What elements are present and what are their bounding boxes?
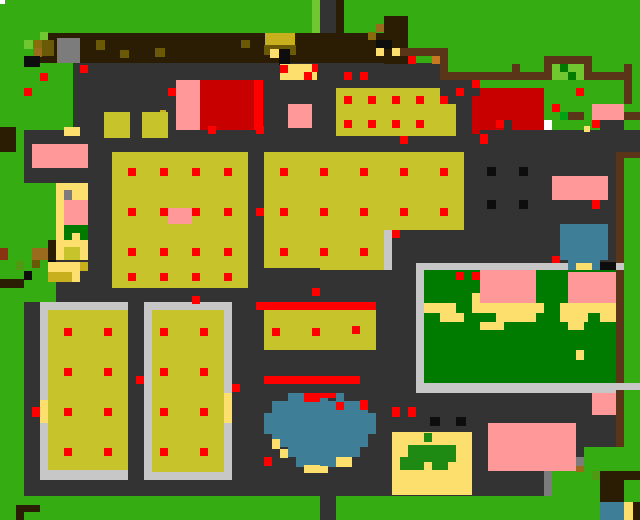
guest-marker	[392, 407, 400, 417]
entrance-door	[279, 49, 290, 65]
kerb-detail	[40, 400, 48, 423]
guest-marker	[256, 208, 264, 216]
guest-marker	[40, 73, 48, 81]
pink-stall-se	[592, 393, 616, 415]
guest-marker	[472, 80, 480, 88]
garden-detail	[576, 350, 584, 360]
object-marker	[519, 200, 528, 209]
pond-edge	[320, 466, 328, 473]
garden-path	[568, 322, 584, 330]
west-detail	[0, 279, 24, 288]
sand-corner	[80, 262, 88, 271]
tables-east	[320, 230, 384, 270]
east-fence	[440, 72, 552, 80]
shadow	[24, 271, 32, 280]
fence	[400, 48, 448, 56]
scrub	[376, 24, 384, 32]
queue-line	[304, 393, 320, 402]
object-marker	[487, 200, 496, 209]
entrance-sign	[265, 33, 295, 45]
south-gate	[16, 512, 24, 520]
object-marker	[519, 167, 528, 176]
guest-marker	[64, 328, 72, 336]
sand-corner	[48, 272, 72, 282]
map-dot	[0, 0, 5, 4]
guest-marker	[408, 407, 416, 417]
brown-building-se	[600, 471, 624, 502]
kerb	[544, 471, 552, 496]
guest-marker	[344, 72, 352, 80]
guest-marker	[64, 408, 72, 416]
guest-marker	[160, 448, 168, 456]
guest-marker	[400, 208, 408, 216]
guest-marker	[392, 230, 400, 238]
park-map-viewport[interactable]	[0, 0, 640, 520]
guest-marker	[280, 248, 288, 256]
guest-marker	[104, 408, 112, 416]
kerb	[384, 230, 392, 270]
brown-building-se	[624, 471, 640, 480]
south-gate	[16, 505, 40, 512]
guest-marker	[192, 296, 200, 304]
guest-marker	[80, 65, 88, 73]
pink-building-nw	[32, 144, 88, 168]
guest-marker	[400, 168, 408, 176]
guest-marker	[360, 400, 368, 410]
guest-marker	[264, 457, 272, 466]
shrub	[560, 112, 568, 120]
guest-marker	[368, 96, 376, 104]
guest-marker	[208, 126, 216, 134]
north-wall	[336, 0, 344, 63]
guest-marker	[232, 384, 240, 392]
guest-marker	[280, 65, 288, 73]
stall	[64, 127, 80, 136]
guest-marker	[416, 120, 424, 128]
garden-detail	[472, 293, 480, 303]
tree-logo	[400, 457, 424, 470]
pink-building-east	[552, 176, 608, 200]
garden-path	[560, 313, 588, 322]
gate-house	[57, 38, 80, 63]
guest-marker	[312, 64, 318, 72]
guest-marker	[104, 368, 112, 376]
fence	[624, 112, 640, 120]
guest-marker	[320, 248, 328, 256]
pond-edge	[272, 439, 280, 449]
guest-marker	[32, 407, 40, 417]
guest-marker	[200, 408, 208, 416]
guest-marker	[440, 168, 448, 176]
tree-logo	[432, 462, 448, 470]
guest-marker	[160, 273, 168, 281]
garden-path	[480, 322, 504, 330]
entrance-detail	[270, 49, 279, 58]
kerb	[40, 470, 128, 480]
west-detail	[0, 248, 8, 260]
scrub	[96, 40, 105, 50]
tables-ne	[336, 130, 456, 136]
kerb	[224, 423, 232, 472]
pen-fence	[544, 64, 552, 80]
scrub	[42, 40, 54, 56]
blue-building	[600, 230, 608, 260]
garden-path	[440, 313, 464, 322]
guest-marker	[360, 208, 368, 216]
red-building-main	[254, 80, 263, 130]
guest-marker	[592, 120, 600, 128]
guest-marker	[592, 200, 600, 209]
red-building-main	[176, 80, 200, 130]
shrub	[592, 471, 600, 480]
guest-marker	[320, 168, 328, 176]
guest-marker	[64, 448, 72, 456]
west-detail	[16, 261, 24, 270]
guest-marker	[336, 402, 344, 410]
scrub	[368, 32, 376, 40]
kiosk-1	[104, 112, 130, 138]
plaza	[73, 63, 448, 80]
garden-frame-left	[416, 270, 424, 390]
garden-path	[600, 313, 616, 322]
picnic-sw-1	[48, 310, 128, 470]
stall	[392, 48, 400, 56]
guest-marker	[64, 368, 72, 376]
lawn-patch	[584, 447, 624, 471]
detail	[576, 466, 584, 472]
light-grass	[24, 40, 33, 49]
guest-marker	[312, 288, 320, 296]
pond-edge	[336, 457, 352, 467]
guest-marker	[192, 208, 200, 216]
garden-path	[424, 303, 616, 313]
stall-detail	[64, 247, 80, 260]
guest-marker	[192, 248, 200, 256]
guest-marker	[440, 208, 448, 216]
guest-marker	[408, 56, 416, 64]
red-strip	[472, 96, 480, 134]
guest-marker	[360, 168, 368, 176]
guest-marker	[224, 248, 232, 256]
tables-mid	[264, 152, 320, 268]
west-hut	[0, 127, 16, 152]
guest-marker	[272, 328, 280, 336]
pen-fence	[584, 64, 592, 80]
guest-marker	[552, 256, 560, 263]
kerb-detail	[224, 393, 232, 423]
guest-marker	[392, 96, 400, 104]
garden-frame-bottom	[416, 383, 616, 393]
kerb	[224, 310, 232, 393]
guest-marker	[360, 72, 368, 80]
doorway	[544, 120, 552, 130]
scrub	[155, 48, 165, 57]
guest-marker	[456, 272, 464, 280]
guest-marker	[280, 208, 288, 216]
pond	[272, 434, 368, 447]
scrub	[33, 40, 42, 48]
guest-marker	[344, 120, 352, 128]
guest-marker	[368, 120, 376, 128]
guest-marker	[392, 120, 400, 128]
guest-marker	[168, 88, 176, 96]
guest-marker	[304, 72, 312, 80]
west-detail	[32, 248, 48, 260]
garden-lawn	[456, 303, 472, 313]
kiosk-2	[142, 112, 168, 138]
shadow	[600, 262, 616, 270]
fence	[624, 64, 632, 104]
pink-stall-ne	[592, 104, 624, 120]
garden-flowerbed-1	[480, 270, 536, 303]
guest-marker	[160, 248, 168, 256]
guest-marker	[200, 448, 208, 456]
fence	[512, 64, 520, 72]
kerb	[144, 302, 232, 310]
garden-flowerbed-2	[568, 272, 616, 303]
stall	[432, 56, 440, 64]
guest-marker	[456, 88, 464, 96]
queue-line	[320, 393, 336, 398]
fence	[592, 72, 624, 80]
pink-patch	[168, 208, 192, 224]
se-detail	[633, 502, 640, 520]
garden-path	[496, 313, 536, 322]
guest-marker	[224, 273, 232, 281]
stall-detail	[64, 200, 88, 225]
kerb	[144, 310, 152, 470]
guest-marker	[24, 88, 32, 96]
kerb	[40, 310, 48, 470]
east-fence-strip	[616, 390, 624, 447]
pond-edge	[304, 465, 320, 473]
guest-marker	[312, 328, 320, 336]
stall-detail	[72, 233, 80, 240]
pond	[272, 401, 368, 413]
guest-marker	[192, 168, 200, 176]
guest-marker	[128, 208, 136, 216]
bench	[568, 112, 584, 120]
pond-edge	[280, 449, 288, 458]
guest-marker	[224, 168, 232, 176]
pen-fence	[544, 56, 592, 64]
guest-marker	[496, 120, 504, 128]
guest-marker	[104, 448, 112, 456]
red-building-ne	[480, 88, 544, 130]
guest-marker	[192, 273, 200, 281]
guest-marker	[440, 96, 448, 104]
guest-marker	[160, 168, 168, 176]
guest-marker	[472, 272, 480, 280]
red-awning-south	[264, 376, 360, 384]
object-marker	[487, 167, 496, 176]
guest-marker	[280, 168, 288, 176]
se-pool	[600, 502, 624, 520]
detail	[576, 263, 592, 270]
guest-marker	[128, 168, 136, 176]
shadow	[24, 56, 40, 67]
scrub	[241, 40, 250, 48]
guest-marker	[160, 408, 168, 416]
garden-lawn	[544, 303, 560, 313]
guest-marker	[360, 248, 368, 256]
guest-marker	[160, 328, 168, 336]
red-awning	[256, 302, 376, 310]
guest-marker	[104, 328, 112, 336]
detail	[584, 126, 590, 132]
pink-building-se	[488, 423, 576, 471]
doorway	[504, 120, 512, 130]
se-detail	[624, 502, 633, 520]
guest-marker	[224, 208, 232, 216]
object-marker	[430, 417, 440, 426]
guest-marker	[344, 96, 352, 104]
red-building-main	[200, 80, 256, 130]
guest-marker	[256, 126, 264, 134]
light-grass	[312, 0, 320, 33]
guest-marker	[416, 96, 424, 104]
kerb	[40, 302, 128, 310]
west-detail	[48, 240, 56, 260]
guest-marker	[128, 273, 136, 281]
pen-shrub	[560, 64, 568, 72]
tree-logo	[424, 433, 432, 442]
object-marker	[456, 417, 466, 426]
guest-marker	[136, 376, 144, 384]
doorway	[600, 120, 624, 130]
pink-stall	[288, 104, 312, 128]
guest-marker	[200, 368, 208, 376]
guest-marker	[160, 208, 168, 216]
guest-marker	[128, 248, 136, 256]
west-detail	[32, 260, 40, 268]
garden-frame-bottom	[616, 383, 640, 390]
kerb	[536, 263, 568, 270]
guest-marker	[480, 134, 488, 144]
guest-marker	[576, 88, 584, 96]
scrub	[120, 50, 129, 58]
tables-east	[320, 152, 464, 230]
guest-marker	[352, 326, 360, 334]
guest-marker	[160, 368, 168, 376]
pen-shrub	[568, 72, 576, 80]
guest-marker	[400, 136, 408, 144]
north-wall	[40, 33, 384, 63]
stall	[376, 48, 384, 56]
stall-detail	[64, 190, 72, 200]
guest-marker	[200, 328, 208, 336]
detail	[576, 457, 584, 466]
guest-marker	[320, 208, 328, 216]
guest-marker	[552, 104, 560, 112]
fence	[440, 56, 448, 72]
pond	[264, 413, 376, 434]
entrance-path-south	[320, 496, 336, 520]
